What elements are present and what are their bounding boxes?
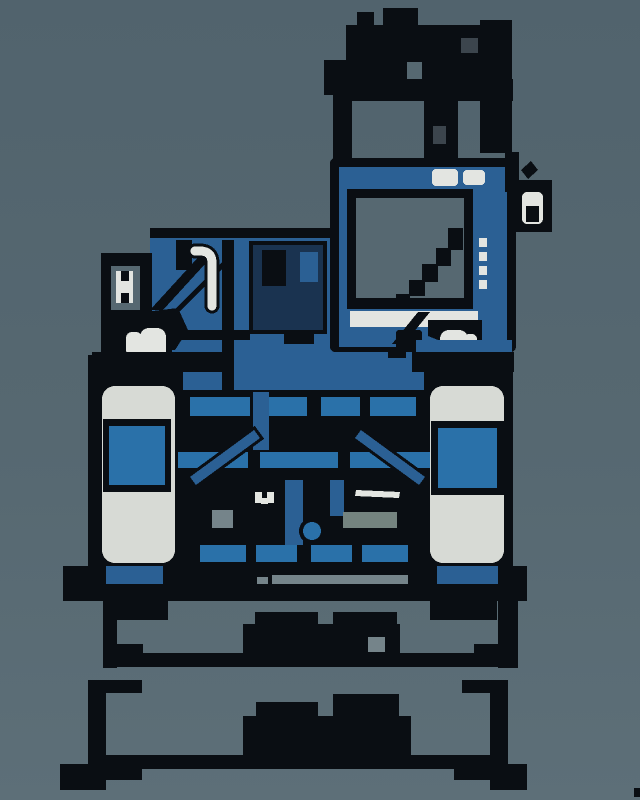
diagram-canvas bbox=[0, 0, 640, 800]
machine-dimension-diagram bbox=[0, 0, 640, 800]
left-wheel bbox=[88, 355, 183, 592]
cab-work-light-left bbox=[432, 169, 458, 186]
axle-pivot bbox=[303, 522, 321, 540]
dim-lower-line bbox=[88, 755, 508, 769]
dim-lower-right-tick bbox=[490, 680, 508, 790]
operator-cab bbox=[330, 158, 516, 358]
cab-work-light-right bbox=[463, 170, 485, 185]
axle-chassis bbox=[178, 390, 430, 592]
left-wheel-hub bbox=[109, 426, 165, 485]
right-wheel-hub bbox=[438, 428, 497, 488]
corner-artifact bbox=[634, 788, 640, 797]
mast-vent bbox=[461, 38, 478, 53]
dim-lower-left-tick bbox=[88, 680, 106, 790]
right-wheel bbox=[424, 355, 513, 592]
